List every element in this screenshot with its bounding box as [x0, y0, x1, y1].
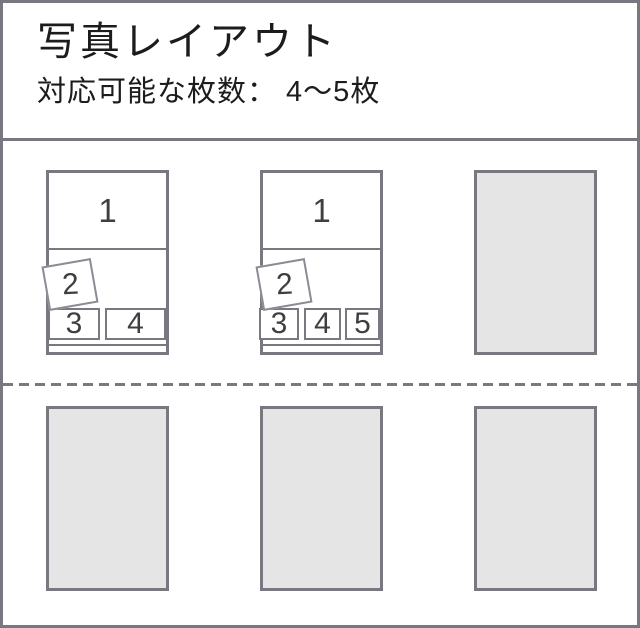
layout-row-top: 1 2 3 4 1 2 3 4 — [3, 170, 637, 355]
slot-number: 4 — [127, 309, 144, 339]
layout-placeholder — [260, 406, 383, 591]
layout-row-bottom — [3, 406, 637, 591]
photo-slot-5: 5 — [345, 308, 380, 340]
dashed-divider — [3, 383, 637, 386]
photo-slot-4: 4 — [304, 308, 341, 340]
photo-slot-1: 1 — [263, 173, 380, 250]
layout-placeholder — [474, 170, 597, 355]
page-title: 写真レイアウト — [37, 19, 617, 65]
supported-count-subtitle: 対応可能な枚数： 4～5枚 — [37, 76, 617, 109]
slot-number: 3 — [66, 309, 83, 339]
photo-layout-screen: 写真レイアウト 対応可能な枚数： 4～5枚 1 2 3 4 1 2 — [0, 0, 640, 628]
slot-number: 4 — [314, 309, 331, 339]
photo-slot-3: 3 — [48, 308, 100, 340]
card-footer-line — [263, 344, 380, 346]
layout-placeholder — [474, 406, 597, 591]
slot-number: 1 — [98, 194, 116, 227]
photo-slot-4: 4 — [105, 308, 166, 340]
photo-slot-3: 3 — [259, 308, 299, 340]
slot-number: 2 — [275, 269, 293, 300]
slot-number: 5 — [354, 309, 371, 339]
card-footer-line — [49, 344, 166, 346]
layout-option-5-photos[interactable]: 1 2 3 4 5 — [260, 170, 383, 355]
layout-option-4-photos[interactable]: 1 2 3 4 — [46, 170, 169, 355]
photo-slot-2: 2 — [41, 258, 98, 311]
layout-placeholder — [46, 406, 169, 591]
photo-slot-1: 1 — [49, 173, 166, 250]
slot-number: 3 — [271, 309, 288, 339]
slot-number: 2 — [61, 269, 79, 300]
slot-number: 1 — [312, 194, 330, 227]
photo-slot-2: 2 — [255, 258, 312, 311]
header: 写真レイアウト 対応可能な枚数： 4～5枚 — [3, 3, 637, 141]
